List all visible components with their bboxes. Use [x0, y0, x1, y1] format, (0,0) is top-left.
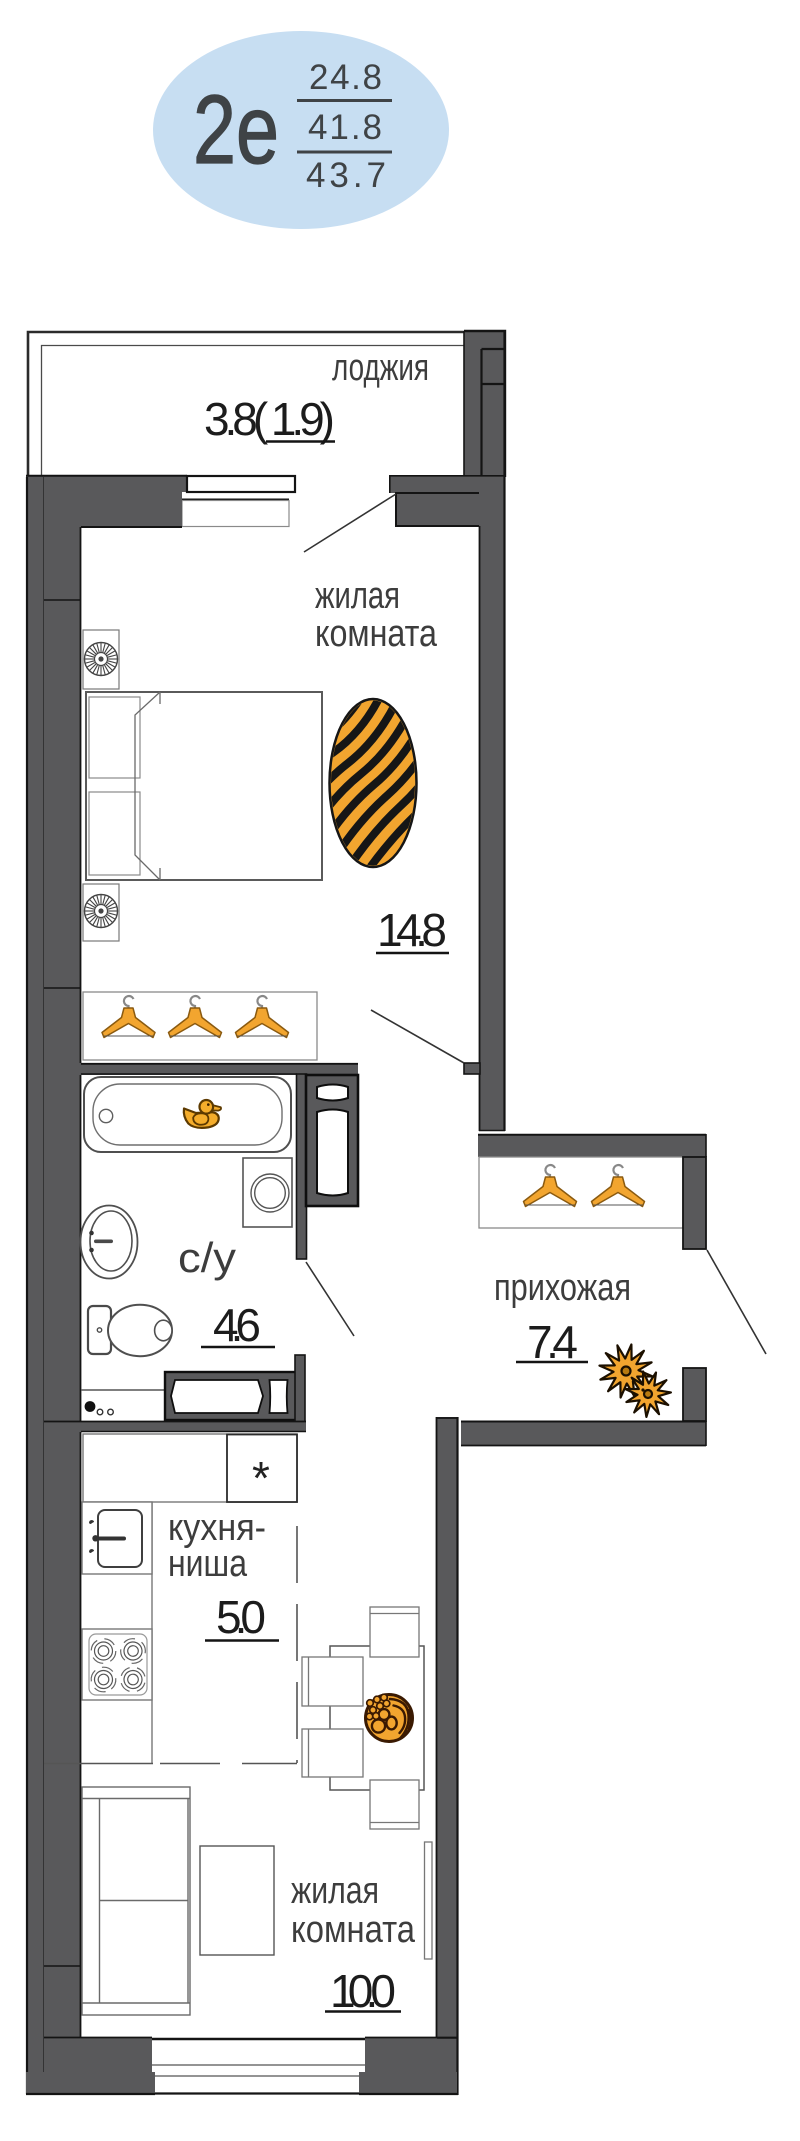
svg-text:лоджия: лоджия	[332, 347, 429, 389]
svg-text:10.0: 10.0	[330, 1965, 396, 2017]
svg-text:прихожая: прихожая	[494, 1267, 631, 1309]
svg-text:комната: комната	[291, 1909, 416, 1951]
svg-text:43.7: 43.7	[306, 156, 386, 195]
svg-text:с/у: с/у	[178, 1234, 236, 1281]
svg-text:3.8( 1.9): 3.8( 1.9)	[204, 393, 335, 445]
svg-text:ниша: ниша	[168, 1543, 248, 1585]
svg-text:жилая: жилая	[291, 1870, 379, 1912]
svg-text:24.8: 24.8	[309, 58, 382, 97]
svg-text:14.8: 14.8	[377, 904, 447, 956]
svg-text:5.0: 5.0	[216, 1591, 266, 1643]
svg-text:жилая: жилая	[315, 575, 400, 617]
svg-text:4.6: 4.6	[213, 1299, 261, 1351]
svg-text:комната: комната	[315, 613, 438, 655]
svg-text:2е: 2е	[193, 75, 279, 184]
svg-text:7.4: 7.4	[527, 1316, 578, 1368]
svg-text:41.8: 41.8	[308, 108, 382, 147]
svg-text:*: *	[252, 1452, 270, 1504]
